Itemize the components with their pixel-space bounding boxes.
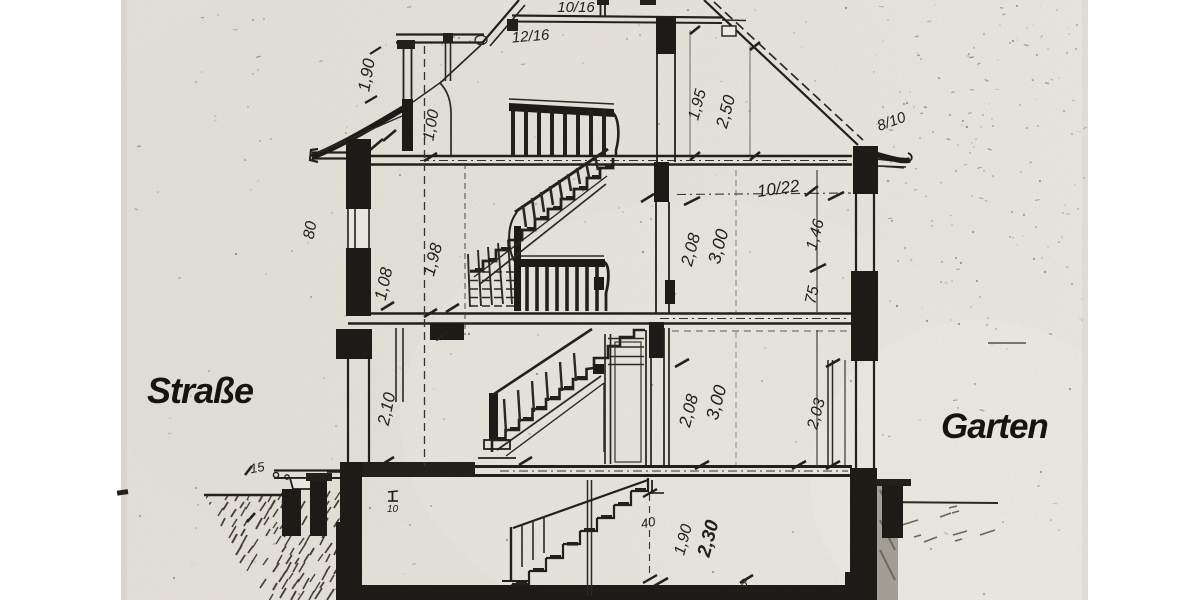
svg-text:10/16: 10/16 — [557, 0, 595, 16]
svg-text:75: 75 — [802, 284, 822, 305]
svg-text:12/16: 12/16 — [511, 26, 551, 46]
svg-text:Garten: Garten — [941, 407, 1048, 446]
svg-text:Straße: Straße — [147, 370, 254, 411]
svg-text:80: 80 — [301, 220, 321, 241]
svg-text:10: 10 — [387, 504, 399, 515]
